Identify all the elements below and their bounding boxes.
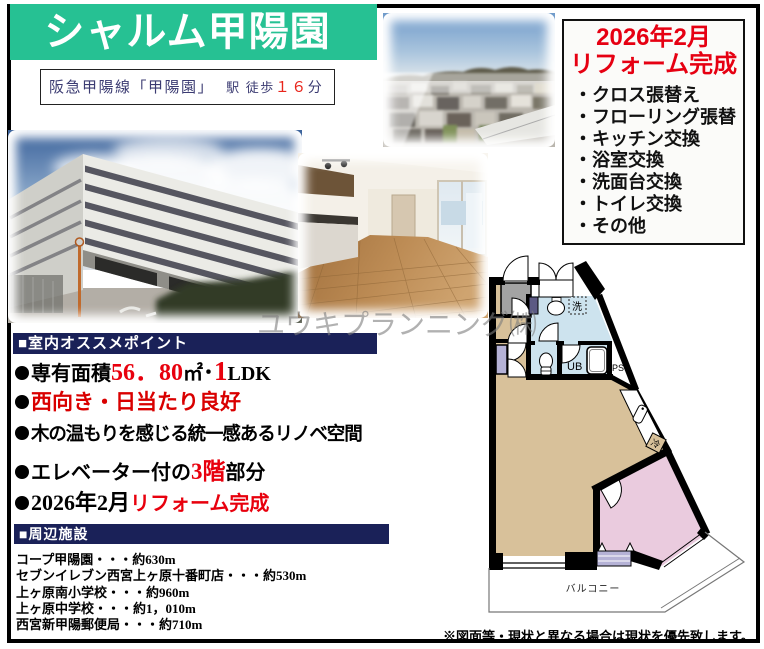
svg-text:洗: 洗 (572, 301, 582, 313)
svg-text:バルコニー: バルコニー (566, 583, 621, 595)
svg-text:UB: UB (567, 361, 582, 373)
svg-text:PS: PS (612, 363, 624, 373)
